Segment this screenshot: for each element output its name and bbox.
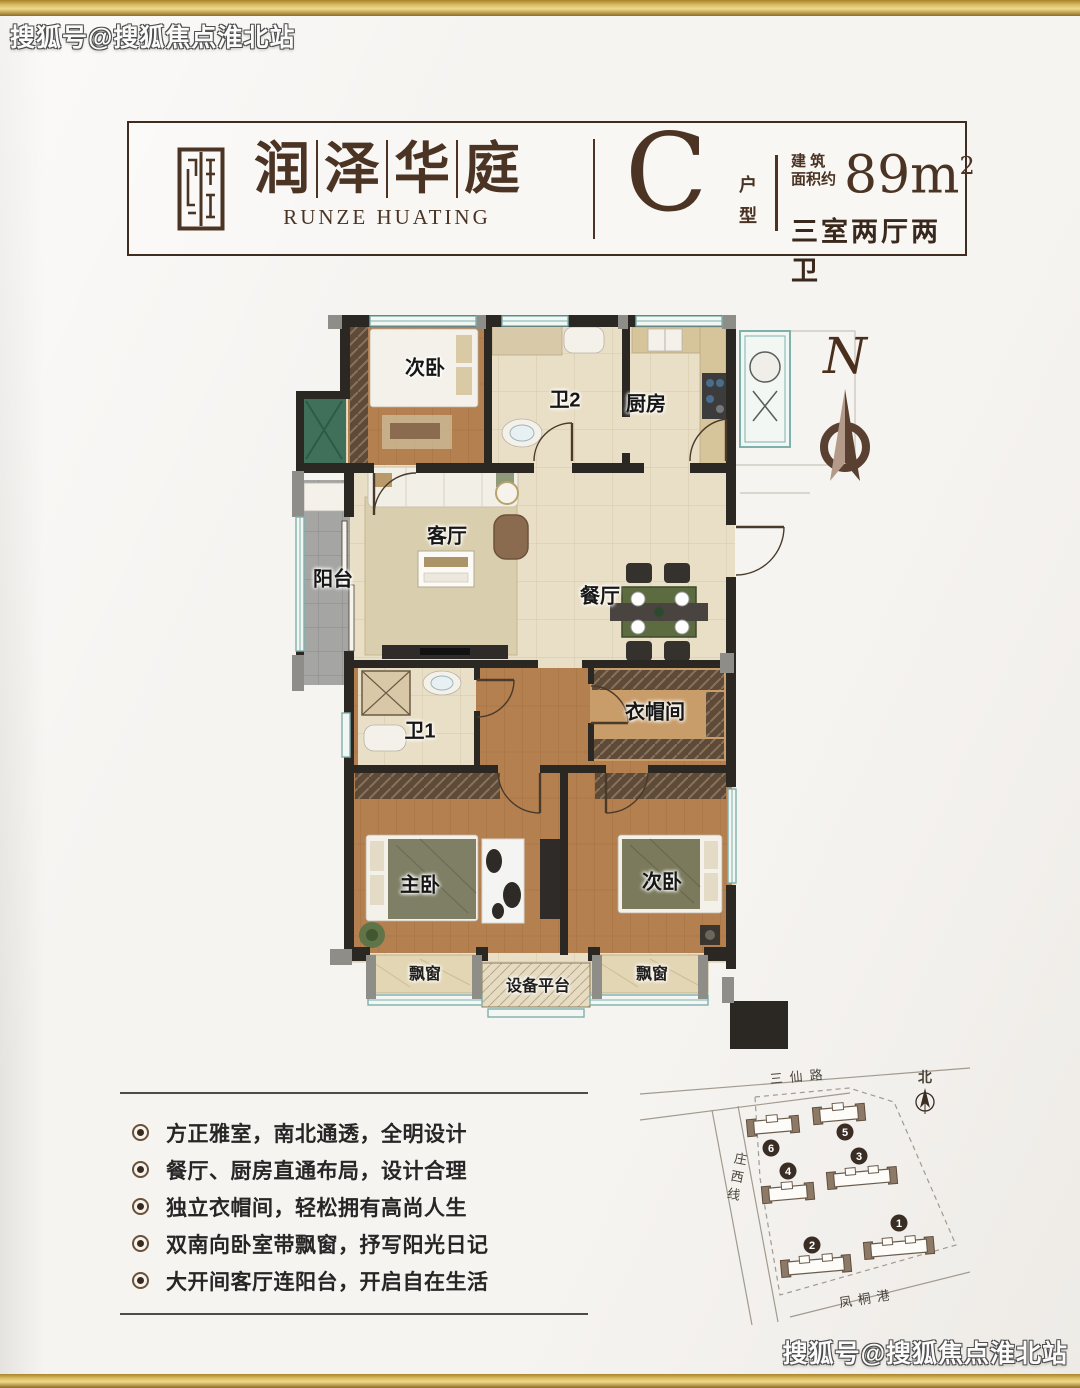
site-plan-drawing: 三仙路 庄西线 凤桐港 北 bbox=[640, 1060, 970, 1330]
balcony-cabinet bbox=[304, 483, 346, 511]
master-wardrobe bbox=[355, 773, 500, 799]
feature-item: 方正雅室，南北通透，全明设计 bbox=[132, 1114, 588, 1151]
room-label-second-bedroom-top: 次卧 bbox=[405, 352, 445, 381]
second-wardrobe bbox=[595, 773, 726, 799]
bullet-icon bbox=[132, 1124, 149, 1141]
unit-type-label: 户 型 bbox=[739, 171, 757, 228]
watermark-bottom: 搜狐号@搜狐焦点淮北站 bbox=[783, 1334, 1068, 1370]
compass-north-icon bbox=[813, 385, 877, 495]
building-1 bbox=[863, 1234, 934, 1260]
area-value: 89m2 bbox=[844, 139, 975, 202]
building-2 bbox=[780, 1252, 851, 1278]
feature-text: 大开间客厅连阳台，开启自在生活 bbox=[166, 1266, 489, 1296]
svg-text:6: 6 bbox=[768, 1143, 774, 1155]
bullet-icon bbox=[132, 1161, 149, 1178]
room-label-living-room: 客厅 bbox=[427, 520, 467, 549]
bullet-icon bbox=[132, 1235, 149, 1252]
area-prefix-line1: 建 筑 bbox=[791, 153, 825, 170]
road-label-bottom: 凤桐港 bbox=[838, 1287, 897, 1311]
brand-char: 华 bbox=[394, 137, 450, 201]
building-badge-5: 5 bbox=[837, 1124, 854, 1141]
feature-text: 独立衣帽间，轻松拥有高尚人生 bbox=[166, 1192, 467, 1222]
brand-title: 润 泽 华 庭 RUNZE HUATING bbox=[241, 137, 533, 230]
gold-bar-top bbox=[0, 0, 1080, 16]
room-label-cloakroom: 衣帽间 bbox=[625, 696, 685, 725]
svg-text:2: 2 bbox=[809, 1240, 815, 1252]
building-4 bbox=[761, 1180, 815, 1204]
brand-separator bbox=[456, 140, 458, 198]
building-5 bbox=[812, 1101, 866, 1125]
building-6 bbox=[746, 1113, 800, 1137]
building-badge-3: 3 bbox=[851, 1148, 868, 1165]
site-north-indicator: 北 bbox=[916, 1069, 934, 1114]
road-label-top: 三仙路 bbox=[769, 1066, 830, 1086]
brand-char: 庭 bbox=[464, 137, 520, 201]
svg-text:3: 3 bbox=[856, 1151, 862, 1163]
brand-separator bbox=[316, 140, 318, 198]
feature-list: 方正雅室，南北通透，全明设计 餐厅、厨房直通布局，设计合理 独立衣帽间，轻松拥有… bbox=[120, 1092, 588, 1315]
header-box: 润 泽 华 庭 RUNZE HUATING C 户 型 建 筑面积约 89m2 … bbox=[127, 121, 967, 256]
feature-item: 双南向卧室带飘窗，抒写阳光日记 bbox=[132, 1225, 588, 1262]
compass-north-letter: N bbox=[823, 327, 867, 385]
area-number: 89m bbox=[844, 145, 959, 205]
living-room-furniture bbox=[365, 467, 528, 659]
feature-text: 方正雅室，南北通透，全明设计 bbox=[166, 1118, 467, 1148]
svg-text:4: 4 bbox=[785, 1166, 792, 1178]
layout-summary: 三室两厅两卫 bbox=[791, 210, 959, 288]
building-badge-1: 1 bbox=[891, 1215, 908, 1232]
poster-page: 搜狐号@搜狐焦点淮北站 润 泽 华 庭 RUNZE HUATING bbox=[0, 0, 1080, 1388]
feature-item: 餐厅、厨房直通布局，设计合理 bbox=[132, 1151, 588, 1188]
room-label-master-bedroom: 主卧 bbox=[400, 869, 440, 898]
brand-subtitle-en: RUNZE HUATING bbox=[241, 205, 533, 230]
brand-seal-icon bbox=[177, 147, 225, 231]
feature-text: 双南向卧室带飘窗，抒写阳光日记 bbox=[166, 1229, 489, 1259]
brand-char: 泽 bbox=[324, 137, 380, 201]
header-divider bbox=[593, 139, 595, 239]
feature-item: 独立衣帽间，轻松拥有高尚人生 bbox=[132, 1188, 588, 1225]
unit-type-char: 型 bbox=[739, 202, 757, 228]
annotation-bay-window-left: 飘窗 bbox=[409, 960, 441, 984]
building-3 bbox=[826, 1164, 897, 1190]
annotation-bay-window-right: 飘窗 bbox=[636, 960, 668, 984]
area-prefix-line2: 面积约 bbox=[791, 171, 836, 188]
room-label-bath-1: 卫1 bbox=[404, 715, 435, 744]
building-badge-4: 4 bbox=[780, 1163, 797, 1180]
brand-separator bbox=[386, 140, 388, 198]
building-badge-6: 6 bbox=[763, 1140, 780, 1157]
room-label-bath-2: 卫2 bbox=[549, 384, 580, 413]
feature-item: 大开间客厅连阳台，开启自在生活 bbox=[132, 1262, 588, 1299]
unit-type-char: 户 bbox=[739, 171, 757, 197]
north-label: 北 bbox=[918, 1069, 932, 1085]
area-block: 建 筑面积约 89m2 三室两厅两卫 bbox=[791, 139, 959, 288]
room-label-second-bedroom-bottom: 次卧 bbox=[642, 866, 682, 895]
building-badge-2: 2 bbox=[804, 1237, 821, 1254]
road-label-left: 庄西线 bbox=[723, 1150, 748, 1206]
room-label-dining-room: 餐厅 bbox=[580, 580, 620, 609]
room-label-kitchen: 厨房 bbox=[626, 388, 666, 417]
bullet-icon bbox=[132, 1198, 149, 1215]
unit-letter: C bbox=[625, 109, 708, 239]
area-exponent: 2 bbox=[960, 152, 975, 180]
bullet-icon bbox=[132, 1272, 149, 1289]
watermark-top: 搜狐号@搜狐焦点淮北站 bbox=[10, 18, 295, 54]
brand-char: 润 bbox=[254, 137, 310, 201]
area-prefix: 建 筑面积约 bbox=[791, 153, 836, 189]
gold-bar-bottom bbox=[0, 1374, 1080, 1388]
annotation-equipment-platform: 设备平台 bbox=[506, 972, 570, 996]
svg-text:5: 5 bbox=[842, 1127, 848, 1139]
room-label-balcony: 阳台 bbox=[313, 563, 353, 592]
feature-text: 餐厅、厨房直通布局，设计合理 bbox=[166, 1155, 467, 1185]
laundry-platform bbox=[740, 331, 790, 447]
header-divider-thin bbox=[775, 155, 778, 231]
site-plan: 三仙路 庄西线 凤桐港 北 bbox=[640, 1060, 970, 1335]
svg-text:1: 1 bbox=[896, 1218, 902, 1230]
